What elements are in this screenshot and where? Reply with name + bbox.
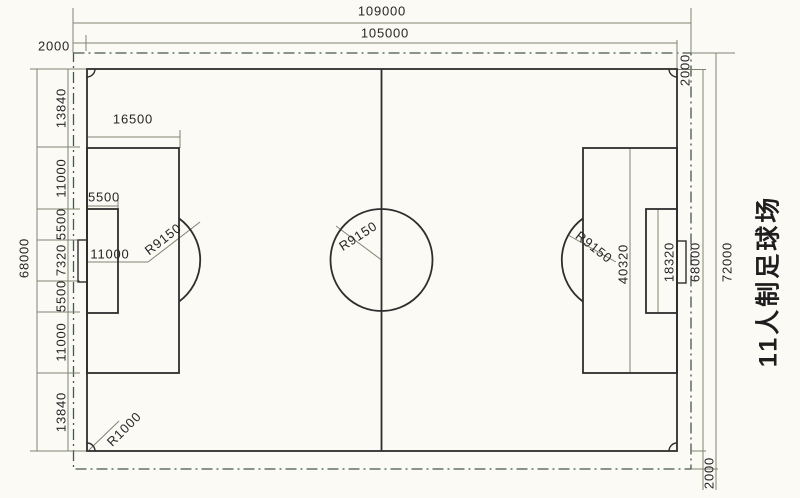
dim-2000-bottom-right-label: 2000 [703,457,716,489]
dim-2000-top-left-label: 2000 [38,40,70,53]
dim-40320-label: 40320 [617,244,630,284]
seg-11000-bottom-label: 11000 [55,322,68,361]
dim-2000-top-right-label: 2000 [679,54,692,86]
seg-13840-bottom-label: 13840 [55,392,68,432]
dim-105000-label: 105000 [361,27,409,40]
dim-72000-label: 72000 [721,242,734,282]
drawing-sheet: 109000 105000 2000 2000 68000 13840 1100… [0,0,800,498]
dim-68000-right-label: 68000 [689,242,702,282]
dim-18320-label: 18320 [663,242,676,282]
right-goal [677,241,686,283]
seg-7320-label: 7320 [55,244,68,276]
left-goal [78,240,87,282]
dim-5500-goal-area-label: 5500 [88,191,120,204]
seg-11000-top-label: 11000 [55,158,68,197]
dim-109000-label: 109000 [358,5,406,18]
seg-13840-top-label: 13840 [55,88,68,128]
dim-68000-left-label: 68000 [18,238,31,278]
dim-16500-label: 16500 [113,113,153,126]
drawing-title: 11人制足球场 [757,195,782,367]
seg-5500-top-label: 5500 [55,208,68,240]
pitch-markings [78,69,686,451]
seg-5500-bottom-label: 5500 [55,280,68,312]
dim-11000-penalty-label: 11000 [90,248,129,261]
